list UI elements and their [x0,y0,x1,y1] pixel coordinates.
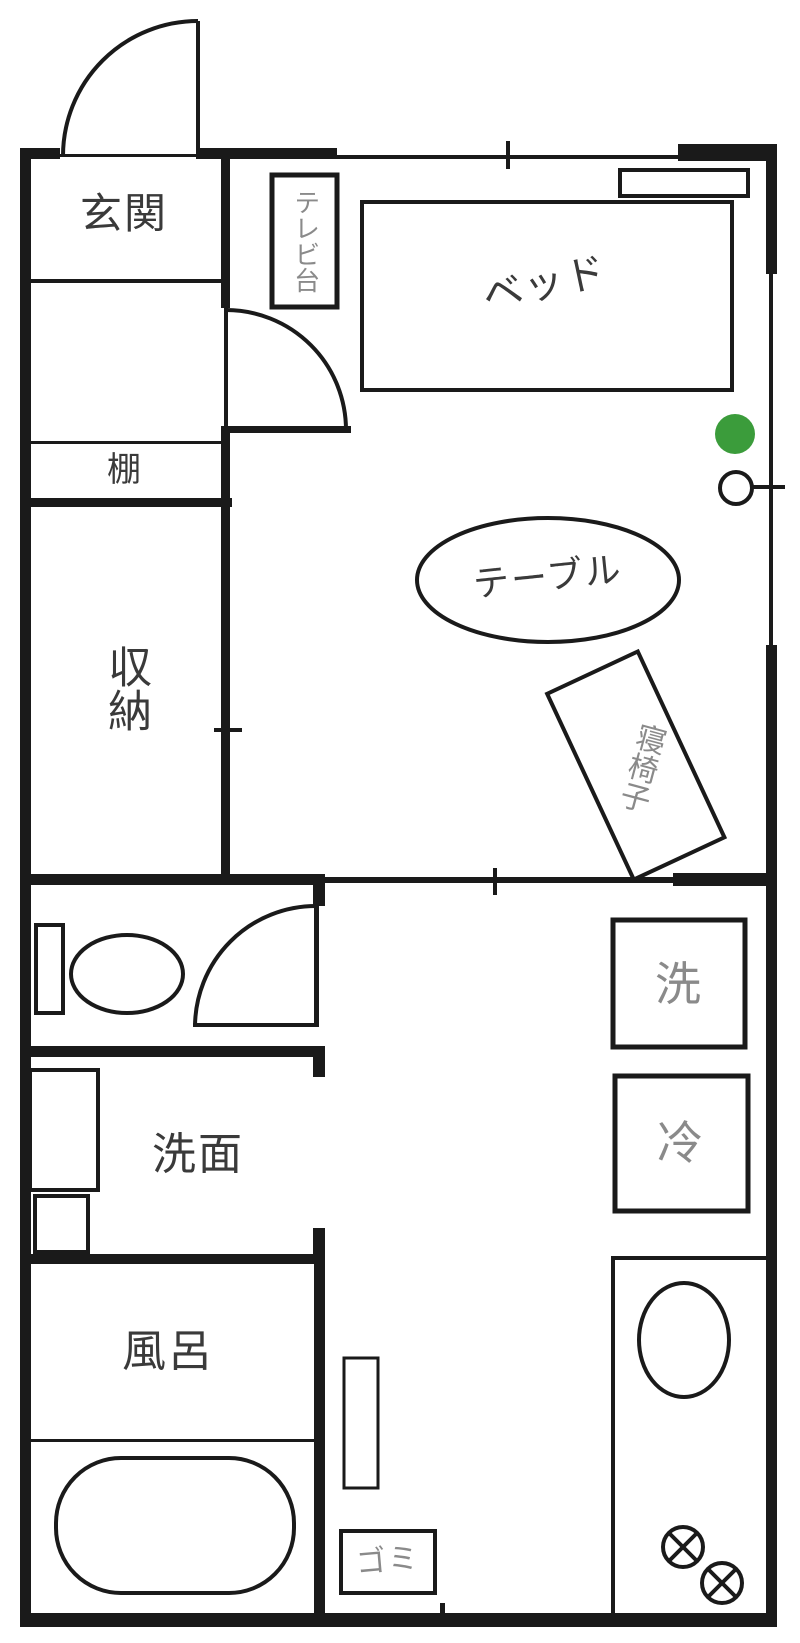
toilet-cistern-outline [36,925,63,1013]
wall-top-right [678,144,777,161]
shelf-label: 棚 [107,453,143,489]
headboard-shelf-outline [620,170,748,196]
wall-divider-mid [325,877,673,883]
wall-storage-right [221,433,230,883]
entrance-threshold [58,154,200,157]
wall-right-lower [766,645,777,1627]
wall-hall-upper [221,153,230,308]
toilet-wall-stub-top [313,874,325,906]
window-right [769,270,773,650]
toilet-wall-stub-bottom [313,1046,325,1077]
floorplan-linework [0,0,800,1643]
wall-top-left-stub [20,148,60,159]
narrow-shelf-outline [344,1358,378,1488]
wall-top-mid [196,148,337,159]
bath-label: 風呂 [122,1329,214,1375]
wall-divider-right [673,873,777,886]
kitchen-sink-outline [639,1283,729,1397]
entrance-door-leaf [196,21,200,156]
washer-label: 洗 [655,960,703,1008]
wall-left [20,148,31,1627]
light-fixture-circle [720,472,752,504]
main-door-arc [226,310,346,430]
wall-washroom-bottom [20,1254,325,1264]
genkan-label: 玄関 [80,192,168,236]
stove-burner-icon [663,1527,703,1567]
tick-right-window [753,485,785,489]
shelf-line-top [25,441,226,444]
washroom-label: 洗面 [152,1132,244,1178]
vanity-outline [30,1070,98,1190]
fridge-label: 冷 [657,1119,705,1167]
bath-divider-line [25,1439,315,1442]
genkan-step-line [25,279,226,283]
toilet-door-arc [195,906,316,1027]
counter-left-edge [611,1256,615,1613]
wall-bath-right [314,1228,325,1618]
counter-top-edge [611,1256,777,1260]
tick-bottom-wall [440,1603,445,1615]
toilet-threshold [193,1023,315,1027]
wall-divider-left [20,874,325,885]
bathtub-outline [56,1458,294,1593]
stove-burner-icon [702,1563,742,1603]
shelf-line-bottom [25,498,232,507]
tv-stand-label: テレビ台 [290,189,317,293]
toilet-bowl-outline [71,935,183,1013]
wall-right-upper [766,148,777,274]
wall-toilet-bottom [20,1046,325,1057]
wall-under-door [221,426,351,433]
wall-bottom [20,1613,777,1627]
storage-label: 収納 [102,644,148,732]
door-toilet-leaf [314,906,319,1027]
trash-label: ゴミ [355,1543,422,1580]
vanity-small-box-outline [35,1196,88,1252]
green-marker [715,414,755,454]
door-main-leaf [224,308,228,430]
floorplan: 玄関 棚 収納 洗面 風呂 テレビ台 ベッド テーブル 寝椅子 洗 冷 ゴミ [0,0,800,1643]
entrance-door-arc [63,21,198,156]
tick-top-window [506,141,510,169]
